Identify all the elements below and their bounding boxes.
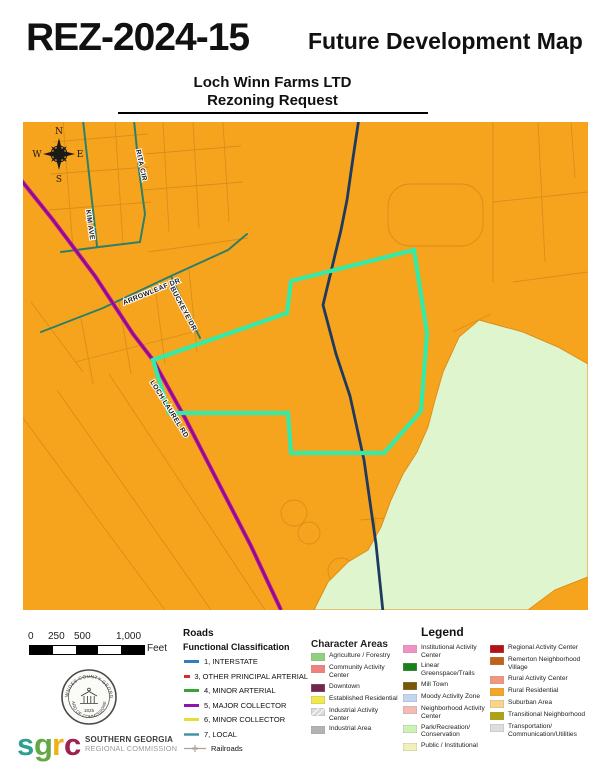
sgrc-logo: s g r c SOUTHERN GEORGIA REGIONAL COMMIS… — [16, 726, 186, 764]
color-swatch — [490, 712, 504, 720]
color-swatch — [403, 663, 417, 671]
legend-label: Rural Activity Center — [508, 675, 568, 684]
legend-label: Agriculture / Forestry — [329, 652, 390, 661]
legend-label: 5, MAJOR COLLECTOR — [204, 701, 286, 710]
color-swatch — [403, 743, 417, 751]
legend-label: Neighborhood Activity Center — [421, 705, 491, 720]
sgrc-letter-r: r — [52, 727, 64, 762]
legend-row-moody-activity-zone: Moody Activity Zone — [403, 693, 491, 702]
legend-label: Remerton Neighborhood Village — [508, 656, 586, 671]
major-collector-line-swatch — [183, 702, 200, 709]
compass-e: E — [77, 150, 84, 160]
compass-s: S — [56, 175, 62, 185]
color-swatch — [311, 726, 325, 734]
compass-n: N — [55, 127, 63, 137]
case-number: REZ-2024-15 — [26, 16, 249, 60]
legend-label: Industrial Activity Center — [329, 707, 399, 722]
request-type: Rezoning Request — [0, 92, 545, 110]
scale-1000: 1,000 — [116, 631, 141, 642]
legend-row-minor-arterial: 4, MINOR ARTERIAL — [183, 686, 308, 695]
map-subtitle: Loch Winn Farms LTD Rezoning Request — [0, 74, 545, 110]
legend-label: Transportation/ Communication/Utilities — [508, 723, 586, 738]
legend-label: 1, INTERSTATE — [204, 657, 258, 666]
legend-row-transitional-neighborhood: Transitional Neighborhood — [490, 711, 586, 720]
legend-label: Railroads — [211, 744, 243, 753]
map-document-page: REZ-2024-15 Future Development Map Loch … — [0, 0, 600, 776]
color-swatch — [490, 688, 504, 696]
color-swatch — [490, 657, 504, 665]
principal-arterial-line-swatch — [183, 673, 190, 680]
legend-row-established-residential: Established Residential — [311, 695, 399, 704]
legend-row-agriculture: Agriculture / Forestry — [311, 652, 399, 661]
seal-year: 1825 — [84, 708, 95, 713]
legend-row-suburban-area: Suburban Area — [490, 699, 586, 708]
color-swatch — [403, 725, 417, 733]
sgrc-letter-g: g — [34, 727, 53, 762]
color-swatch — [403, 645, 417, 653]
legend-row-interstate: 1, INTERSTATE — [183, 657, 308, 666]
sgrc-letter-s: s — [17, 727, 34, 762]
scale-bar — [29, 645, 145, 655]
color-swatch — [490, 676, 504, 684]
legend-label: Downtown — [329, 683, 360, 692]
legend-row-park-recreation: Park/Recreation/ Conservation — [403, 724, 491, 739]
sgrc-letter-c: c — [64, 727, 81, 762]
local-line-swatch — [183, 731, 200, 738]
color-swatch-hatched — [311, 708, 325, 716]
sgrc-name-line2: REGIONAL COMMISSION — [85, 744, 177, 753]
legend-row-rural-activity-center: Rural Activity Center — [490, 675, 586, 684]
legend-label: Public / Institutional — [421, 742, 478, 751]
scale-250: 250 — [48, 631, 65, 642]
legend-label: Suburban Area — [508, 699, 552, 708]
legend-label: Mill Town — [421, 681, 448, 690]
legend-label: Institutional Activity Center — [421, 644, 491, 659]
roads-legend: Roads Functional Classification 1, INTER… — [183, 628, 308, 759]
legend-row-rural-residential: Rural Residential — [490, 687, 586, 696]
svg-text:s g r c: s g r c — [17, 727, 81, 762]
color-swatch — [311, 684, 325, 692]
legend-row-industrial-activity-center: Industrial Activity Center — [311, 707, 399, 722]
color-swatch — [403, 694, 417, 702]
legend-label: Park/Recreation/ Conservation — [421, 724, 491, 739]
legend-label: 7, LOCAL — [204, 730, 237, 739]
compass-w: W — [32, 150, 42, 160]
legend-row-industrial-area: Industrial Area — [311, 725, 399, 734]
legend-label: Linear Greenspace/Trails — [421, 662, 491, 677]
color-swatch — [403, 706, 417, 714]
legend-label: Established Residential — [329, 695, 398, 704]
legend-label: 4, MINOR ARTERIAL — [204, 686, 276, 695]
legend-label: Regional Activity Center — [508, 644, 578, 653]
legend-row-major-collector: 5, MAJOR COLLECTOR — [183, 701, 308, 710]
subtitle-underline — [118, 112, 428, 114]
legend-label: Rural Residential — [508, 687, 558, 696]
color-swatch — [403, 682, 417, 690]
future-development-map: KIM AVE RITA CIR ARROWLEAF DR BUCKEYE DR… — [23, 122, 588, 610]
legend-label: Moody Activity Zone — [421, 693, 480, 702]
legend-label: 6, MINOR COLLECTOR — [204, 715, 285, 724]
legend-row-community-activity-center: Community Activity Center — [311, 664, 399, 679]
scale-0: 0 — [28, 631, 34, 642]
legend-row-regional-activity-center: Regional Activity Center — [490, 644, 586, 653]
railroad-line-swatch — [183, 744, 207, 753]
roads-legend-subheading: Functional Classification — [183, 642, 308, 652]
legend-label: Transitional Neighborhood — [508, 711, 585, 720]
legend-row-transportation-utilities: Transportation/ Communication/Utilities — [490, 723, 586, 738]
legend-row-minor-collector: 6, MINOR COLLECTOR — [183, 715, 308, 724]
scale-500: 500 — [74, 631, 91, 642]
minor-arterial-line-swatch — [183, 687, 200, 694]
lowndes-county-seal: LOWNDES COUNTY GEORGIA BOARD OF COMMISSI… — [60, 668, 118, 726]
legend-row-railroads: Railroads — [183, 744, 308, 753]
character-legend-column-1: Agriculture / Forestry Community Activit… — [311, 652, 399, 738]
page-title: Future Development Map — [308, 28, 583, 55]
legend-label: 3, OTHER PRINCIPAL ARTERIAL — [194, 672, 308, 681]
interstate-line-swatch — [183, 658, 200, 665]
legend-row-downtown: Downtown — [311, 683, 399, 692]
character-legend-column-3: Regional Activity Center Remerton Neighb… — [490, 644, 586, 742]
scale-unit: Feet — [147, 643, 167, 654]
legend-row-linear-greenspace: Linear Greenspace/Trails — [403, 662, 491, 677]
legend-label: Community Activity Center — [329, 664, 399, 679]
legend-row-public-institutional: Public / Institutional — [403, 742, 491, 751]
legend-title: Legend — [421, 625, 464, 639]
character-areas-heading: Character Areas — [311, 639, 388, 650]
legend-label: Industrial Area — [329, 725, 371, 734]
legend-row-principal-arterial: 3, OTHER PRINCIPAL ARTERIAL — [183, 672, 308, 681]
color-swatch — [490, 700, 504, 708]
color-swatch — [311, 696, 325, 704]
color-swatch — [490, 724, 504, 732]
character-legend-column-2: Institutional Activity Center Linear Gre… — [403, 644, 491, 754]
color-swatch — [490, 645, 504, 653]
legend-row-mill-town: Mill Town — [403, 681, 491, 690]
color-swatch — [311, 665, 325, 673]
legend-row-institutional-activity-center: Institutional Activity Center — [403, 644, 491, 659]
legend-row-neighborhood-activity-center: Neighborhood Activity Center — [403, 705, 491, 720]
roads-legend-heading: Roads — [183, 628, 308, 639]
minor-collector-line-swatch — [183, 716, 200, 723]
legend-row-local: 7, LOCAL — [183, 730, 308, 739]
color-swatch — [311, 653, 325, 661]
applicant-name: Loch Winn Farms LTD — [0, 74, 545, 92]
sgrc-name-line1: SOUTHERN GEORGIA — [85, 735, 173, 744]
legend-row-remerton-village: Remerton Neighborhood Village — [490, 656, 586, 671]
